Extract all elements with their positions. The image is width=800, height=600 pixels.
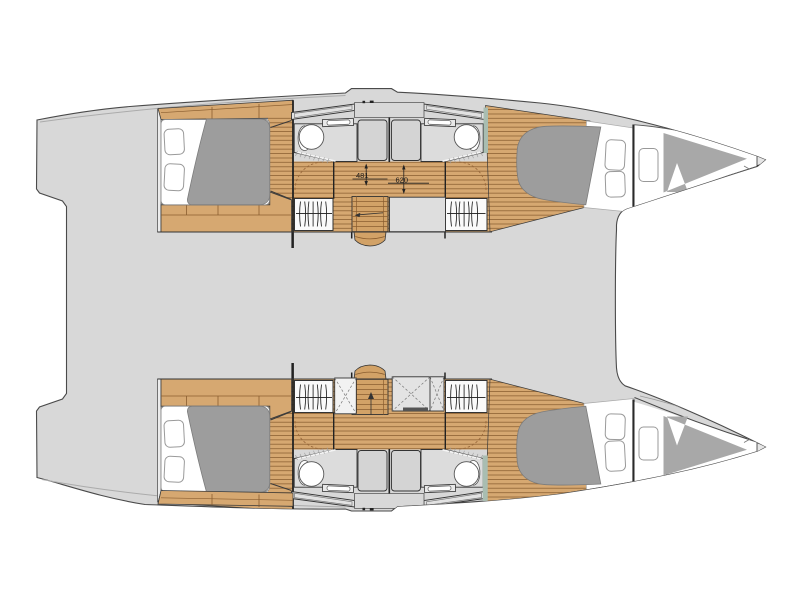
svg-text:481: 481: [356, 171, 369, 180]
svg-text:620: 620: [396, 175, 409, 184]
